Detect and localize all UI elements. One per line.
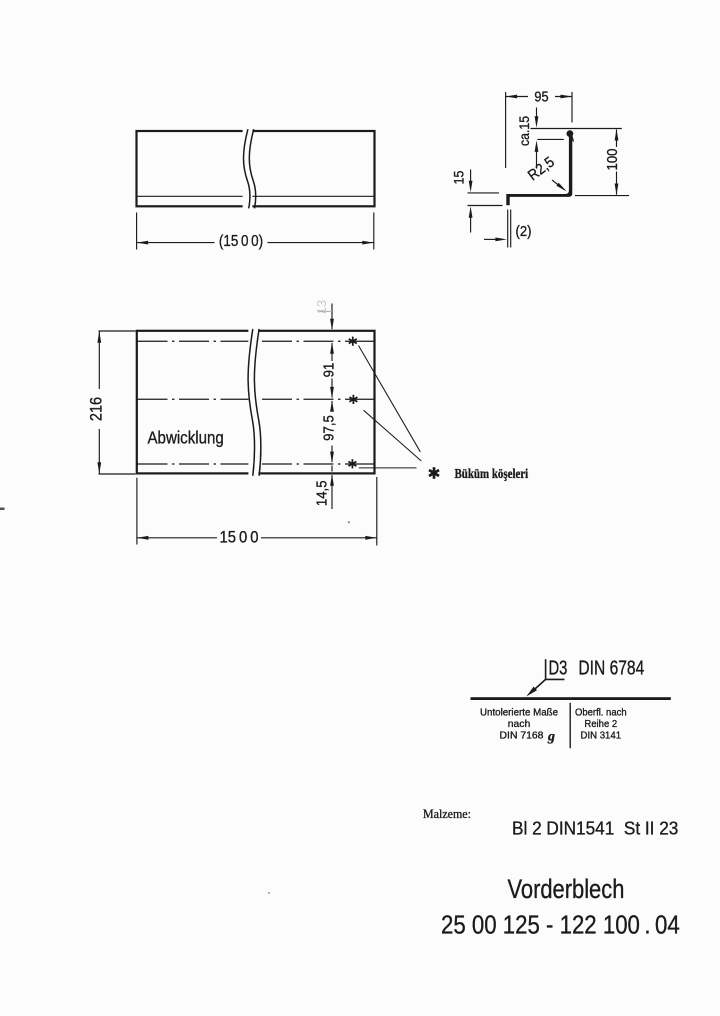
svg-text:Vorderblech: Vorderblech xyxy=(508,875,625,904)
svg-text:14,5: 14,5 xyxy=(313,480,330,506)
svg-text:95: 95 xyxy=(534,89,549,105)
svg-text:Büküm köşeleri: Büküm köşeleri xyxy=(455,466,529,481)
svg-text:g: g xyxy=(547,730,555,745)
svg-text:100: 100 xyxy=(603,148,620,170)
svg-text:91: 91 xyxy=(320,363,337,378)
svg-text:Abwicklung: Abwicklung xyxy=(148,429,224,448)
svg-text:Untolerierte Maße: Untolerierte Maße xyxy=(480,707,558,718)
svg-text:Reihe 2: Reihe 2 xyxy=(584,719,617,730)
svg-text:DIN 6784: DIN 6784 xyxy=(578,657,644,679)
svg-text:D3: D3 xyxy=(549,656,568,679)
svg-text:(15 0 0): (15 0 0) xyxy=(219,233,263,250)
svg-text:nach: nach xyxy=(508,719,531,730)
svg-text:Oberfl. nach: Oberfl. nach xyxy=(575,707,627,718)
svg-text:Malzeme:: Malzeme: xyxy=(423,807,471,822)
svg-text:DIN 3141: DIN 3141 xyxy=(581,730,622,741)
svg-text:216: 216 xyxy=(88,397,106,421)
svg-text:15: 15 xyxy=(451,171,467,185)
svg-text:Bl 2 DIN1541 St II 23: Bl 2 DIN1541 St II 23 xyxy=(512,818,678,839)
svg-text:25 00 125 - 122 100 . 04: 25 00 125 - 122 100 . 04 xyxy=(441,911,680,940)
svg-text:(2): (2) xyxy=(516,223,532,239)
svg-text:15 0 0: 15 0 0 xyxy=(220,529,259,547)
svg-text:97,5: 97,5 xyxy=(320,415,337,441)
svg-text:DIN 7168: DIN 7168 xyxy=(500,731,544,742)
svg-text:ca.15: ca.15 xyxy=(516,116,532,146)
svg-text:13: 13 xyxy=(314,300,329,314)
